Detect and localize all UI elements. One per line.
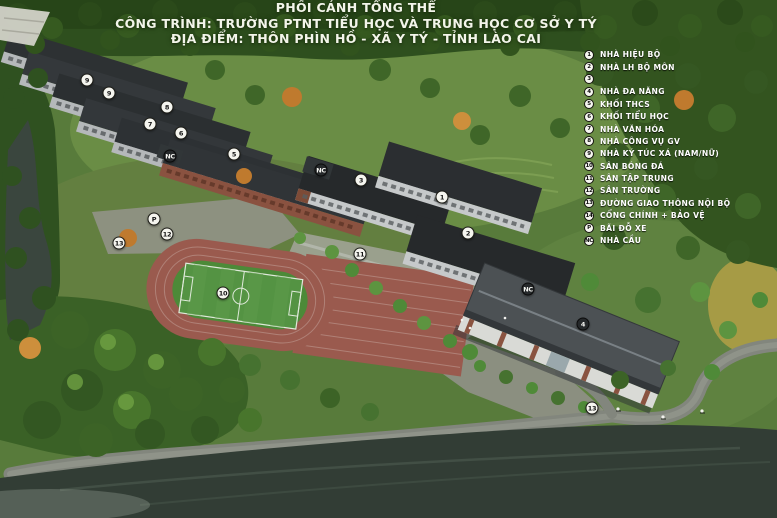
site-plan-rendering: 9 9 8 7 6 NC 5 NC 3 1 2 P 12 13 11 — [0, 0, 777, 518]
legend-badge: 8 — [584, 136, 594, 146]
legend-badge: NC — [584, 236, 594, 246]
legend-badge: 12 — [584, 186, 594, 196]
legend-item: 4 NHÀ ĐA NĂNG — [584, 87, 730, 96]
legend-label: NHÀ VĂN HÓA — [600, 125, 664, 134]
legend-badge: 6 — [584, 112, 594, 122]
title-block: PHỐI CẢNH TỔNG THỂ CÔNG TRÌNH: TRƯỜNG PT… — [0, 0, 712, 47]
legend-item: 12 SÂN TRƯỜNG — [584, 186, 730, 195]
legend-label: KHỐI THCS — [600, 100, 650, 109]
legend-item: 5 KHỐI THCS — [584, 100, 730, 109]
legend-label: NHÀ CÔNG VỤ GV — [600, 137, 680, 146]
legend-label: SÂN TRƯỜNG — [600, 186, 660, 195]
plan-marker: 9 — [103, 87, 116, 100]
legend-item: 11 SÂN TẬP TRUNG — [584, 174, 730, 183]
legend-badge: 7 — [584, 124, 594, 134]
legend-label: KHỐI TIỂU HỌC — [600, 112, 669, 121]
legend-label: NHÀ CẦU — [600, 236, 641, 245]
legend-item: 2 NHÀ LH BỘ MÔN — [584, 62, 730, 71]
plan-marker: NC — [164, 150, 177, 163]
legend-label: NHÀ ĐA NĂNG — [600, 87, 665, 96]
legend-item: P BÃI ĐỖ XE — [584, 223, 730, 232]
legend-badge: 2 — [584, 62, 594, 72]
legend-label: SÂN BÓNG ĐÁ — [600, 162, 664, 171]
legend-item: 7 NHÀ VĂN HÓA — [584, 124, 730, 133]
legend-badge: 3 — [584, 74, 594, 84]
legend-badge: 5 — [584, 99, 594, 109]
plan-marker: 12 — [161, 228, 174, 241]
legend: 1 NHÀ HIỆU BỘ 2 NHÀ LH BỘ MÔN 3 4 NHÀ ĐA… — [584, 50, 730, 245]
legend-badge: 9 — [584, 149, 594, 159]
legend-label: ĐƯỜNG GIAO THÔNG NỘI BỘ — [600, 199, 730, 208]
legend-item: 13 ĐƯỜNG GIAO THÔNG NỘI BỘ — [584, 199, 730, 208]
legend-item: 1 NHÀ HIỆU BỘ — [584, 50, 730, 59]
plan-marker: NC — [522, 283, 535, 296]
plan-marker: 9 — [81, 74, 94, 87]
legend-badge: 11 — [584, 174, 594, 184]
plan-marker: 13 — [586, 402, 599, 415]
legend-badge: 10 — [584, 161, 594, 171]
legend-item: 9 NHÀ KÝ TÚC XÁ (NAM/NỮ) — [584, 149, 730, 158]
legend-badge: 1 — [584, 50, 594, 60]
legend-item: NC NHÀ CẦU — [584, 236, 730, 245]
legend-label: NHÀ KÝ TÚC XÁ (NAM/NỮ) — [600, 149, 719, 158]
plan-marker: 11 — [354, 248, 367, 261]
location-line: ĐỊA ĐIỂM: THÔN PHÌN HỒ - XÃ Y TÝ - TỈNH … — [0, 31, 712, 47]
legend-item: 3 — [584, 75, 730, 84]
plan-marker: 2 — [462, 227, 475, 240]
plan-marker: NC — [315, 164, 328, 177]
legend-label: NHÀ LH BỘ MÔN — [600, 63, 675, 72]
legend-badge: 14 — [584, 211, 594, 221]
legend-badge: 4 — [584, 87, 594, 97]
plan-marker: 5 — [228, 148, 241, 161]
legend-item: 6 KHỐI TIỂU HỌC — [584, 112, 730, 121]
plan-marker: 13 — [113, 237, 126, 250]
page-title: PHỐI CẢNH TỔNG THỂ — [0, 0, 712, 16]
legend-badge: 13 — [584, 198, 594, 208]
project-line: CÔNG TRÌNH: TRƯỜNG PTNT TIỂU HỌC VÀ TRUN… — [0, 16, 712, 32]
legend-item: 10 SÂN BÓNG ĐÁ — [584, 162, 730, 171]
legend-label: BÃI ĐỖ XE — [600, 224, 647, 233]
legend-item: 8 NHÀ CÔNG VỤ GV — [584, 137, 730, 146]
legend-badge: P — [584, 223, 594, 233]
plan-marker: P — [148, 213, 161, 226]
plan-marker: 6 — [175, 127, 188, 140]
plan-marker: 4 — [577, 318, 590, 331]
legend-label: CỔNG CHÍNH + BẢO VỆ — [600, 211, 705, 220]
plan-marker: 7 — [144, 118, 157, 131]
plan-marker: 1 — [436, 191, 449, 204]
legend-label: SÂN TẬP TRUNG — [600, 174, 674, 183]
plan-marker: 10 — [217, 287, 230, 300]
plan-marker: 8 — [161, 101, 174, 114]
plan-marker: 3 — [355, 174, 368, 187]
legend-item: 14 CỔNG CHÍNH + BẢO VỆ — [584, 211, 730, 220]
legend-label: NHÀ HIỆU BỘ — [600, 50, 661, 59]
